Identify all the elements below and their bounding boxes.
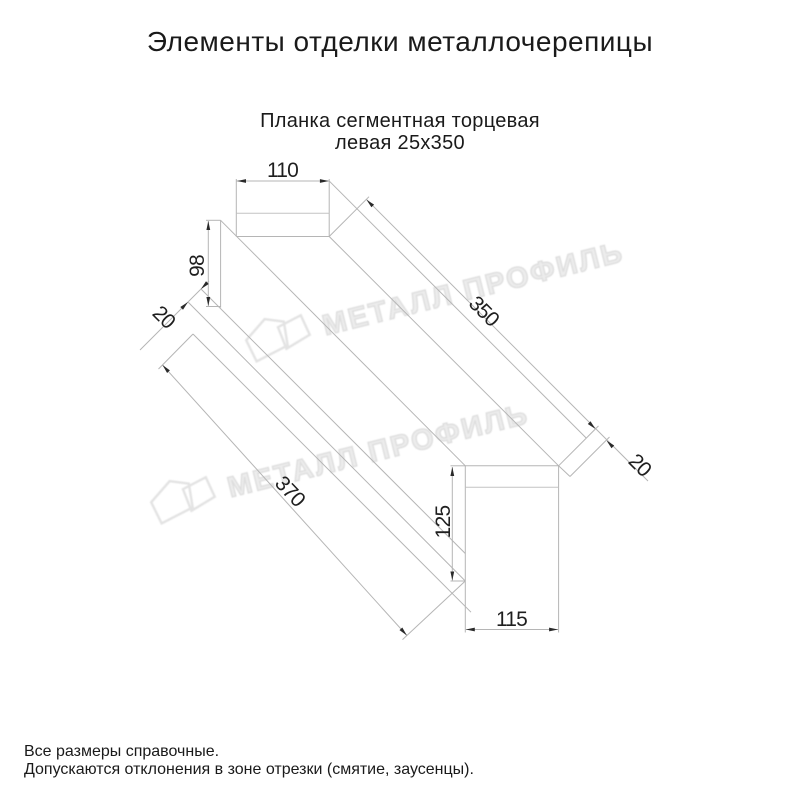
svg-text:125: 125 — [432, 506, 455, 539]
svg-text:20: 20 — [624, 450, 656, 482]
svg-text:98: 98 — [186, 255, 209, 277]
svg-text:115: 115 — [496, 608, 527, 631]
svg-text:20: 20 — [148, 302, 180, 334]
svg-text:350: 350 — [464, 292, 503, 331]
svg-text:370: 370 — [270, 472, 309, 512]
svg-text:110: 110 — [267, 159, 298, 182]
